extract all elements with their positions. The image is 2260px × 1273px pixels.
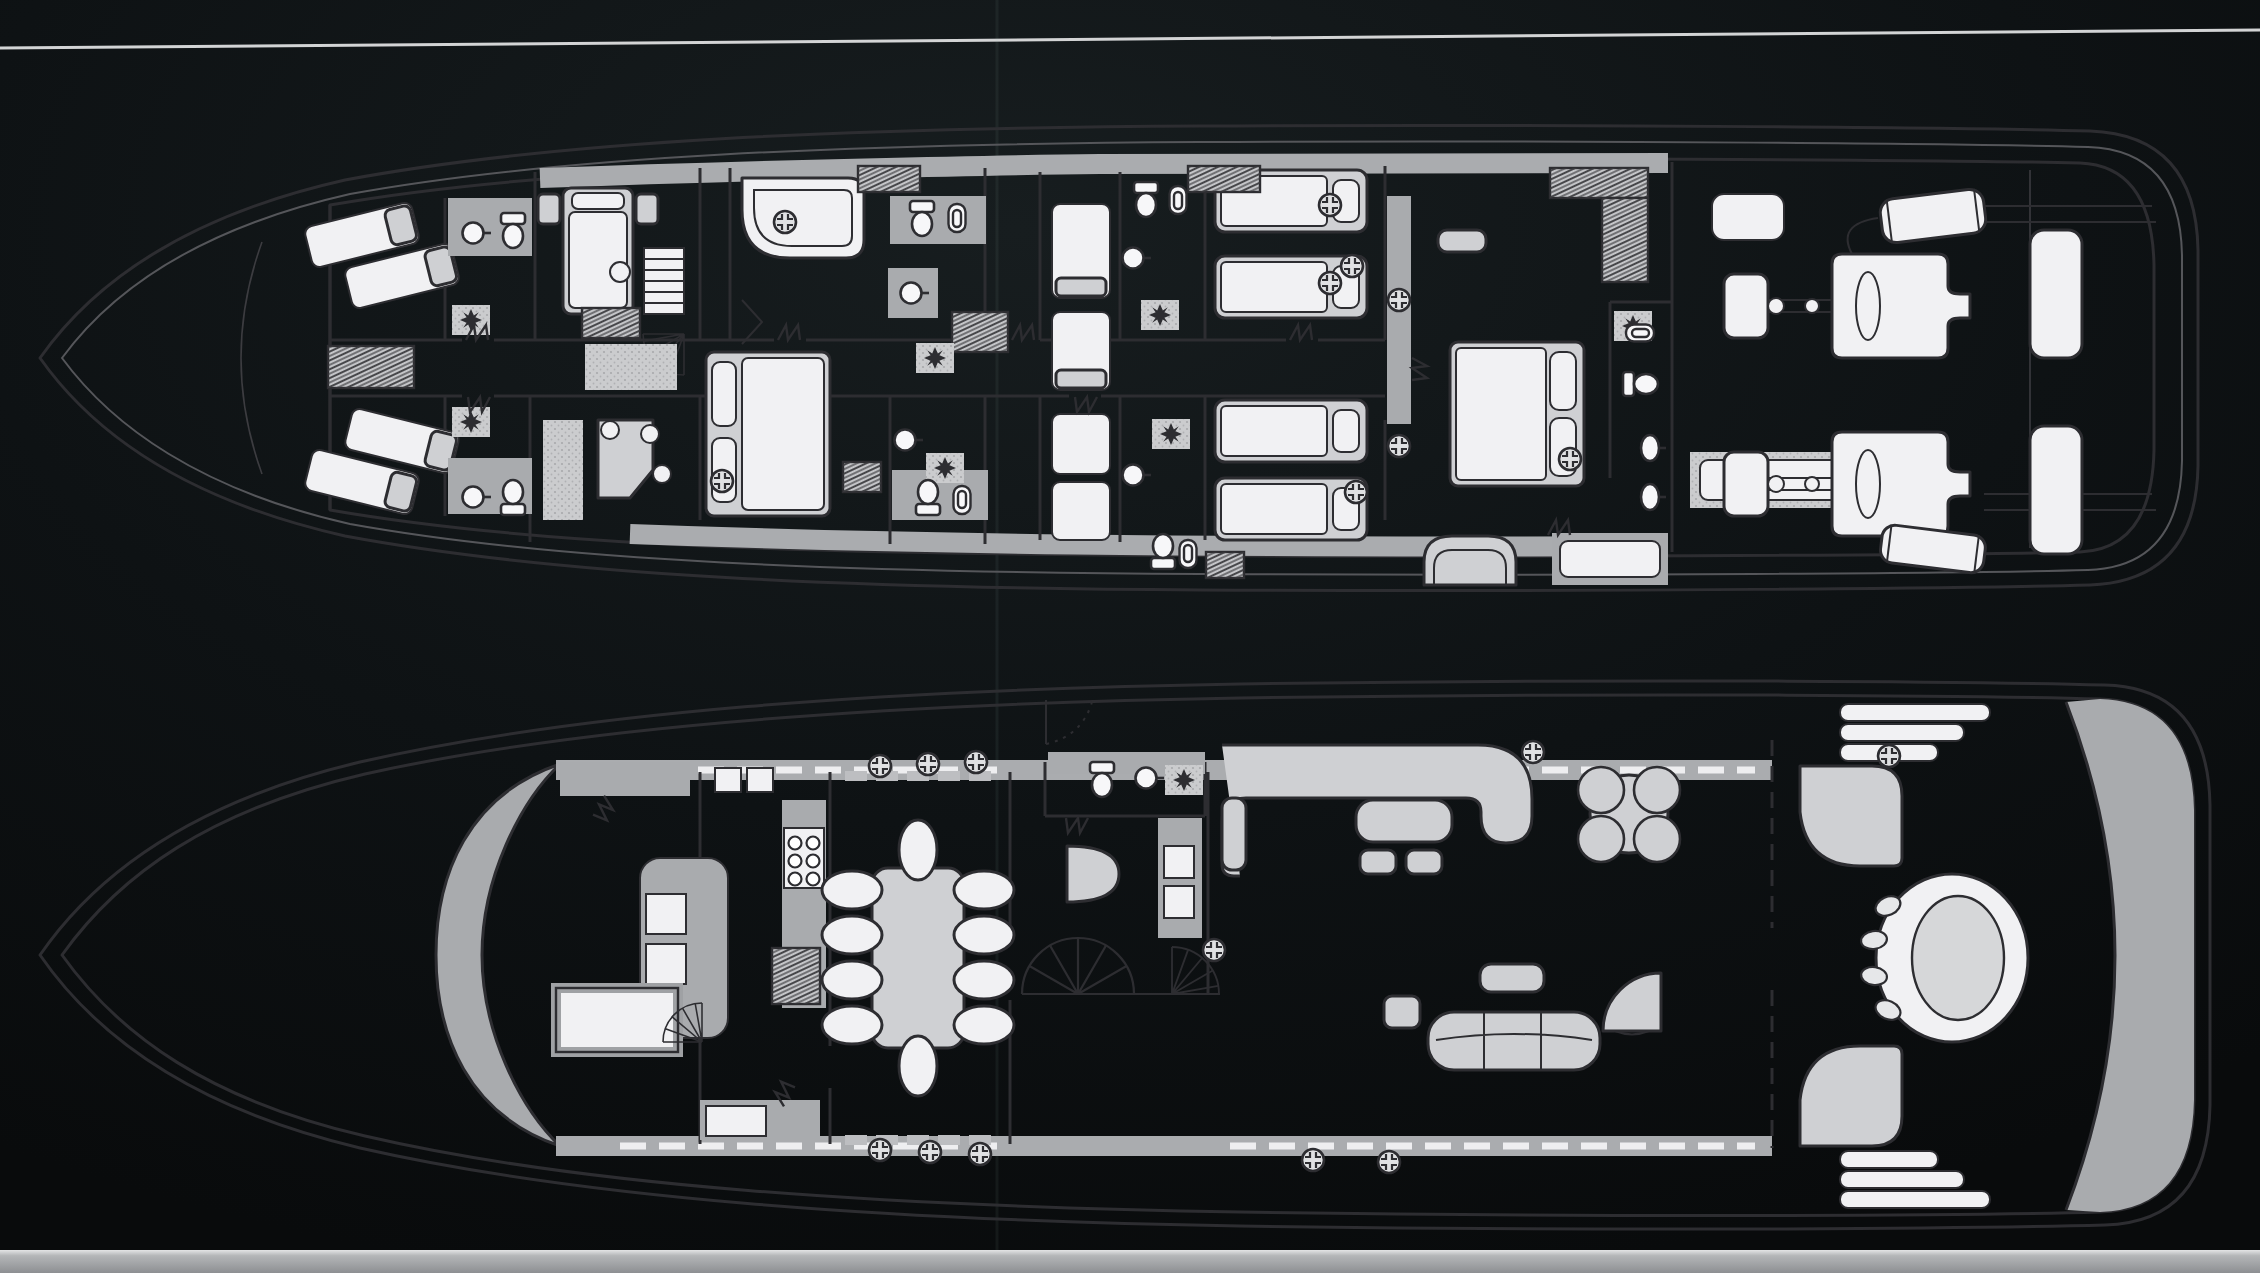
ottoman [1360,850,1396,874]
porthole-screw-icon [1319,194,1341,216]
long-sofa [1428,1012,1600,1070]
dining-chair-icon [899,820,937,880]
porthole-screw-icon [711,470,733,492]
dining-table [872,868,964,1048]
generator [1712,194,1784,240]
ottoman [1406,850,1442,874]
settee-leg [1222,798,1246,870]
toilet-icon [501,480,525,515]
master-vanity [1552,533,1668,585]
porthole-screw-icon [917,753,939,775]
dressing-stool-icon [926,453,964,483]
stove-burner-icon [807,873,820,886]
porthole-screw-icon [1345,481,1367,503]
bidet-icon [1626,325,1654,342]
side-table [1480,964,1544,992]
dining-chair-icon [954,961,1014,999]
bidet-icon [949,204,966,232]
card-chair-icon [1578,816,1624,862]
cabin-carpet [543,420,583,520]
black-background [0,0,2260,1273]
dining-chair-icon [954,871,1014,909]
corner-bench-starboard [1800,1046,1902,1146]
coffee-table [1356,800,1452,842]
porthole-screw-icon [1559,448,1581,470]
porthole-screw-icon [1341,255,1363,277]
porthole-screw-icon [1388,435,1410,457]
dining-chair-icon [899,1036,937,1096]
dressing-stool-icon [1141,300,1179,330]
porthole-screw-icon [774,211,796,233]
porthole-screw-icon [1388,289,1410,311]
porthole-screw-icon [1302,1149,1324,1171]
bathtub [742,178,864,258]
dining-chair-icon [954,916,1014,954]
dressing-stool-icon [1165,765,1203,795]
dash-cabinet [560,762,690,796]
porthole-screw-icon [919,1141,941,1163]
stool [610,262,630,282]
stove-burner-icon [789,837,802,850]
porthole-screw-icon [1878,745,1900,767]
stove-burner-icon [789,873,802,886]
twin-cabin-vertical-berths [1052,204,1110,540]
toilet-icon [1623,372,1658,396]
toilet-icon [910,201,934,236]
yacht-deck-plans-drawing [0,0,2260,1273]
porthole-screw-icon [1522,741,1544,763]
porthole-screw-icon [969,1143,991,1165]
toilet-icon [1134,182,1158,217]
page-edge-band [0,1250,2260,1273]
porthole-screw-icon [1378,1151,1400,1173]
chart-table [556,988,678,1052]
dining-chair-icon [822,1006,882,1044]
dining-chair-icon [954,1006,1014,1044]
porthole-screw-icon [1319,272,1341,294]
stove-burner-icon [807,837,820,850]
dressing-stool-icon [1152,419,1190,449]
bidet-icon [954,486,971,514]
card-chair-icon [1634,767,1680,813]
fuel-tank [2030,426,2082,554]
fuel-tank [2030,230,2082,358]
corridor-carpet [585,344,677,390]
card-chair-icon [1578,767,1624,813]
dining-chair-icon [822,916,882,954]
toilet-icon [916,480,940,515]
porthole-screw-icon [869,1139,891,1161]
toilet-icon [1151,534,1175,569]
toilet-icon [501,213,525,248]
dressing-stool-icon [916,343,954,373]
porthole-screw-icon [1203,939,1225,961]
porthole-screw-icon [869,755,891,777]
bidet-icon [1170,186,1187,214]
stove-burner-icon [789,855,802,868]
corner-bench-port [1800,766,1902,866]
scanned-brochure-page [0,0,2260,1273]
porthole-screw-icon [965,751,987,773]
master-sofa [1424,536,1516,585]
bidet-icon [1180,540,1197,568]
ottoman [1384,996,1420,1028]
dining-chair-icon [822,961,882,999]
master-bench [1438,230,1486,252]
dining-chair-icon [822,871,882,909]
wc-counter [890,196,986,244]
card-chair-icon [1634,816,1680,862]
stove-burner-icon [807,855,820,868]
toilet-icon [1090,762,1114,797]
